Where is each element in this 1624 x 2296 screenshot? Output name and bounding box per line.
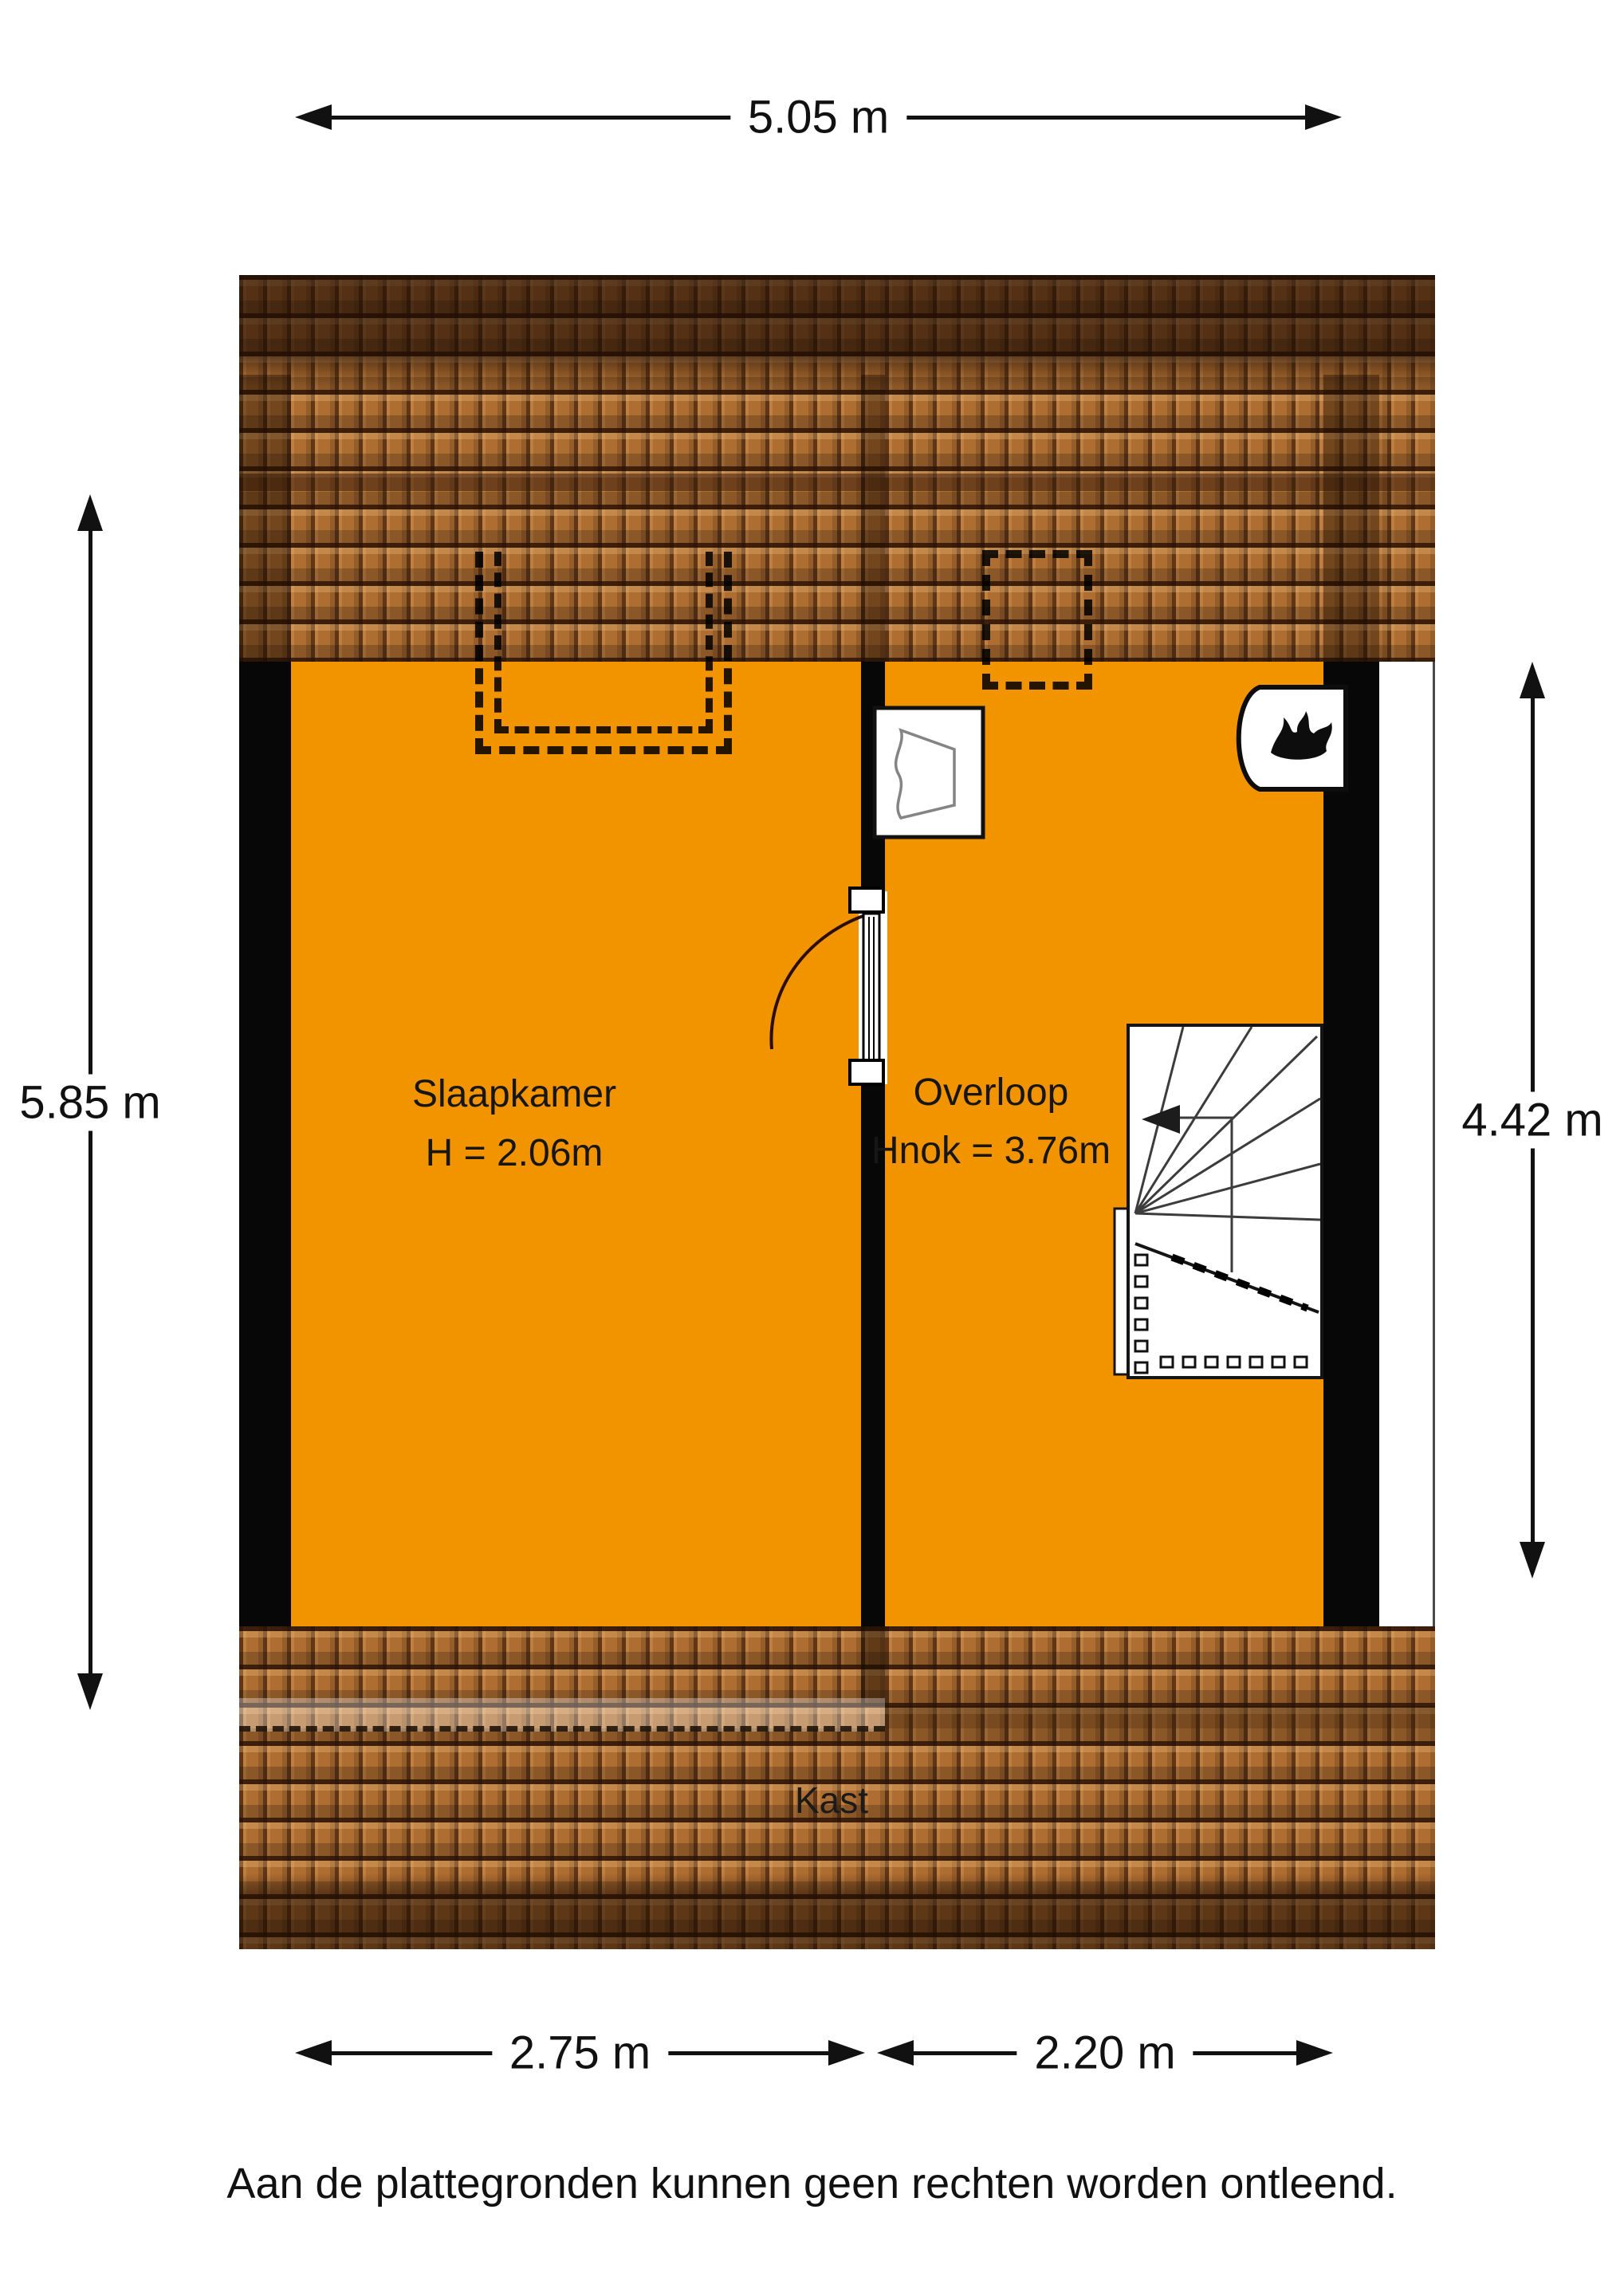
wall-right [1323, 662, 1379, 1626]
dormer-window-inner-line [494, 552, 713, 733]
disclaimer-text: Aan de plattegronden kunnen geen rechten… [0, 2159, 1624, 2208]
arrowhead-left-icon [295, 104, 332, 130]
arrowhead-down-icon [1520, 1542, 1545, 1578]
arrowhead-up-icon [1520, 662, 1545, 698]
room-ridge-height-overloop: Hnok = 3.76m [832, 1129, 1150, 1174]
dormer-window-slaapkamer [475, 552, 732, 754]
roof-bottom: Kast [239, 1626, 1435, 1949]
wall-shadow-left [239, 375, 291, 662]
wall-left [239, 662, 291, 1626]
room-label-slaapkamer: Slaapkamer [315, 1072, 714, 1117]
wall-divider-upper [861, 662, 885, 891]
roof-bend-seam [239, 474, 1435, 491]
dimension-label: 2.20 m [1016, 2025, 1193, 2082]
arrowhead-left-icon [295, 2040, 332, 2066]
wall-shadow-divider [861, 375, 885, 662]
floorplan-page: Kast Slaapkamer H = 2.06m Overloop Hnok … [0, 0, 1624, 2296]
dimension-label: 5.85 m [2, 1074, 178, 1130]
dimension-bottom-right: 2.20 m [877, 2021, 1333, 2085]
roof-gutter-seam-left [239, 1698, 885, 1732]
floor-plan: Kast Slaapkamer H = 2.06m Overloop Hnok … [239, 275, 1435, 1949]
arrowhead-left-icon [877, 2040, 914, 2066]
roof-ridge-dark-band [239, 275, 1435, 387]
arrowhead-right-icon [828, 2040, 865, 2066]
arrowhead-up-icon [77, 494, 103, 531]
dimension-label: 5.05 m [730, 89, 906, 146]
roof-gutter-seam-right [885, 1706, 1435, 1728]
wall-shadow-divider-bottom [861, 1626, 885, 1706]
dimension-right: 4.42 m [1500, 662, 1564, 1578]
dormer-window-overloop [982, 550, 1092, 690]
roof-eave-dark-band [239, 1873, 1435, 1949]
arrowhead-right-icon [1305, 104, 1342, 130]
room-height-slaapkamer: H = 2.06m [315, 1131, 714, 1176]
room-label-overloop: Overloop [832, 1071, 1150, 1115]
arrowhead-right-icon [1296, 2040, 1333, 2066]
dimension-bottom-left: 2.75 m [295, 2021, 865, 2085]
roof-top [239, 275, 1435, 662]
room-label-kast: Kast [712, 1779, 951, 1822]
dimension-label: 4.42 m [1444, 1092, 1620, 1149]
wall-shadow-right [1323, 375, 1379, 662]
dimension-top: 5.05 m [295, 85, 1342, 149]
dimension-label: 2.75 m [492, 2025, 668, 2082]
dimension-left: 5.85 m [58, 494, 122, 1710]
arrowhead-down-icon [77, 1673, 103, 1710]
